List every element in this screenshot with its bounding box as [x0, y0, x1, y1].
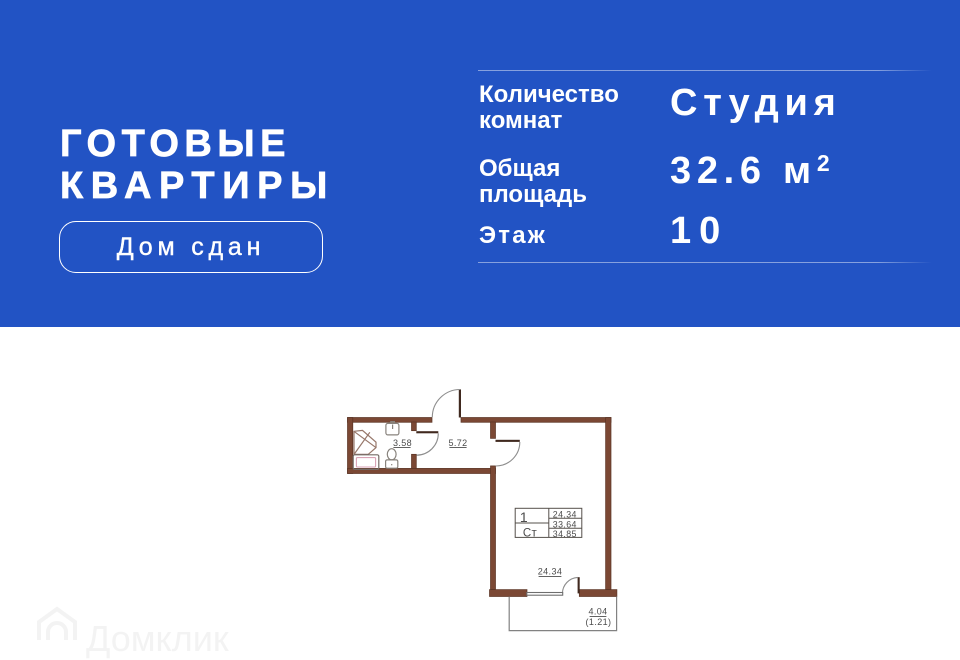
svg-text:1: 1	[520, 509, 528, 525]
svg-text:5.72: 5.72	[448, 438, 467, 448]
svg-text:33.64: 33.64	[553, 520, 577, 530]
svg-text:4.04: 4.04	[588, 607, 607, 617]
svg-text:Ст: Ст	[523, 527, 538, 539]
svg-text:34.85: 34.85	[553, 529, 577, 539]
svg-text:24.34: 24.34	[538, 567, 563, 577]
svg-text:3.58: 3.58	[393, 438, 412, 448]
svg-text:(1.21): (1.21)	[586, 617, 612, 627]
svg-text:24.34: 24.34	[553, 510, 577, 520]
